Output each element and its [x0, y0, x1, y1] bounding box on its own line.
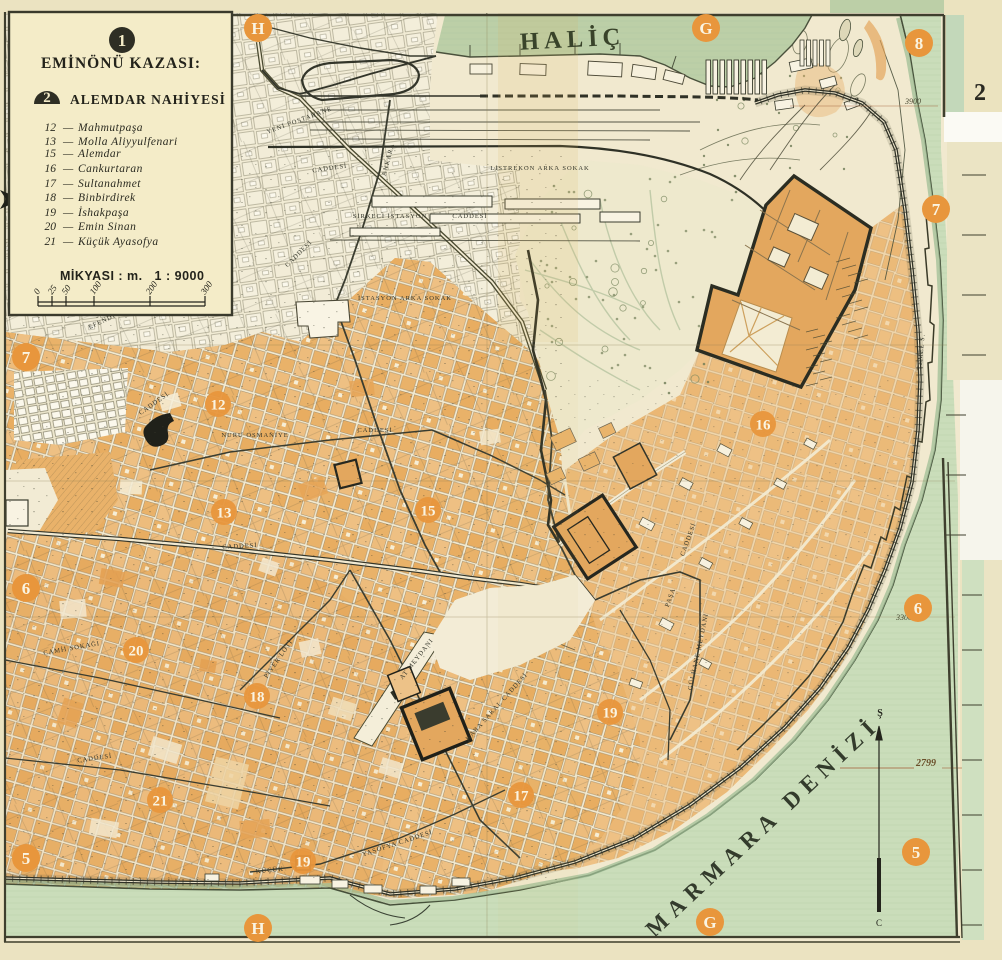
svg-text:EMİNÖNÜ KAZASI:: EMİNÖNÜ KAZASI: — [41, 55, 201, 72]
svg-text:—: — — [62, 236, 74, 248]
svg-text:SİRKECİ İSTASYON: SİRKECİ İSTASYON — [353, 213, 428, 220]
svg-text:Mahmutpaşa: Mahmutpaşa — [77, 122, 143, 134]
svg-text:Cankurtaran: Cankurtaran — [78, 163, 143, 175]
svg-text:1: 1 — [118, 31, 127, 50]
svg-text:Küçük Ayasofya: Küçük Ayasofya — [77, 236, 159, 248]
svg-text:Binbirdirek: Binbirdirek — [78, 192, 136, 204]
svg-text:8: 8 — [915, 34, 924, 53]
svg-text:MİKYASI : m. 1 : 9000: MİKYASI : m. 1 : 9000 — [60, 268, 204, 283]
svg-text:—: — — [62, 148, 74, 160]
svg-text:İSTASYON ARKA SOKAK: İSTASYON ARKA SOKAK — [358, 295, 452, 302]
svg-text:Sultanahmet: Sultanahmet — [78, 178, 141, 190]
svg-text:17: 17 — [514, 789, 530, 805]
svg-text:12: 12 — [211, 398, 226, 414]
svg-text:16: 16 — [45, 163, 57, 175]
svg-text:12: 12 — [45, 122, 57, 134]
svg-text:7: 7 — [22, 348, 31, 367]
svg-text:—: — — [62, 192, 74, 204]
svg-text:19: 19 — [296, 855, 311, 871]
svg-text:20: 20 — [129, 644, 144, 660]
svg-text:15: 15 — [421, 504, 436, 520]
svg-text:CADDESİ: CADDESİ — [452, 213, 487, 220]
svg-text:H: H — [251, 919, 264, 938]
svg-text:HALİÇ: HALİÇ — [519, 22, 626, 55]
svg-text:Alemdar: Alemdar — [77, 148, 121, 160]
svg-text:13: 13 — [45, 136, 57, 148]
svg-text:20: 20 — [45, 221, 57, 233]
svg-text:Molla Aliyyulfenari: Molla Aliyyulfenari — [77, 136, 178, 148]
svg-text:19: 19 — [603, 706, 618, 722]
svg-text:G: G — [699, 19, 712, 38]
svg-text:16: 16 — [756, 418, 772, 434]
svg-text:18: 18 — [250, 690, 265, 706]
svg-text:2: 2 — [974, 80, 986, 106]
svg-text:LİSTREKON ARKA SOKAK: LİSTREKON ARKA SOKAK — [490, 165, 589, 172]
svg-text:—: — — [62, 122, 74, 134]
svg-text:H: H — [251, 19, 264, 38]
svg-text:G: G — [703, 913, 716, 932]
svg-text:Ş: Ş — [877, 708, 883, 719]
svg-text:CADDESİ: CADDESİ — [357, 427, 392, 434]
svg-text:2799: 2799 — [915, 758, 936, 769]
svg-text:—: — — [62, 207, 74, 219]
svg-text:3900: 3900 — [904, 97, 921, 106]
svg-text:21: 21 — [153, 794, 168, 810]
svg-text:2: 2 — [43, 90, 51, 106]
svg-text:6: 6 — [914, 599, 923, 618]
svg-text:İshakpaşa: İshakpaşa — [77, 205, 129, 219]
svg-text:17: 17 — [45, 178, 58, 190]
svg-text:—: — — [62, 136, 74, 148]
svg-text:21: 21 — [45, 236, 57, 248]
svg-text:15: 15 — [45, 148, 57, 160]
svg-text:—: — — [62, 221, 74, 233]
svg-text:Emin Sinan: Emin Sinan — [77, 221, 136, 233]
svg-text:C: C — [876, 918, 882, 928]
svg-text:NURU OSMANİYE: NURU OSMANİYE — [221, 432, 288, 439]
svg-text:7: 7 — [932, 200, 941, 219]
svg-text:—: — — [62, 163, 74, 175]
svg-text:5: 5 — [22, 849, 31, 868]
svg-text:18: 18 — [45, 192, 57, 204]
svg-text:6: 6 — [22, 579, 31, 598]
svg-text:19: 19 — [45, 207, 57, 219]
svg-text:—: — — [62, 178, 74, 190]
svg-text:5: 5 — [912, 843, 921, 862]
svg-text:13: 13 — [217, 506, 232, 522]
svg-text:ALEMDAR NAHİYESİ: ALEMDAR NAHİYESİ — [70, 92, 226, 107]
